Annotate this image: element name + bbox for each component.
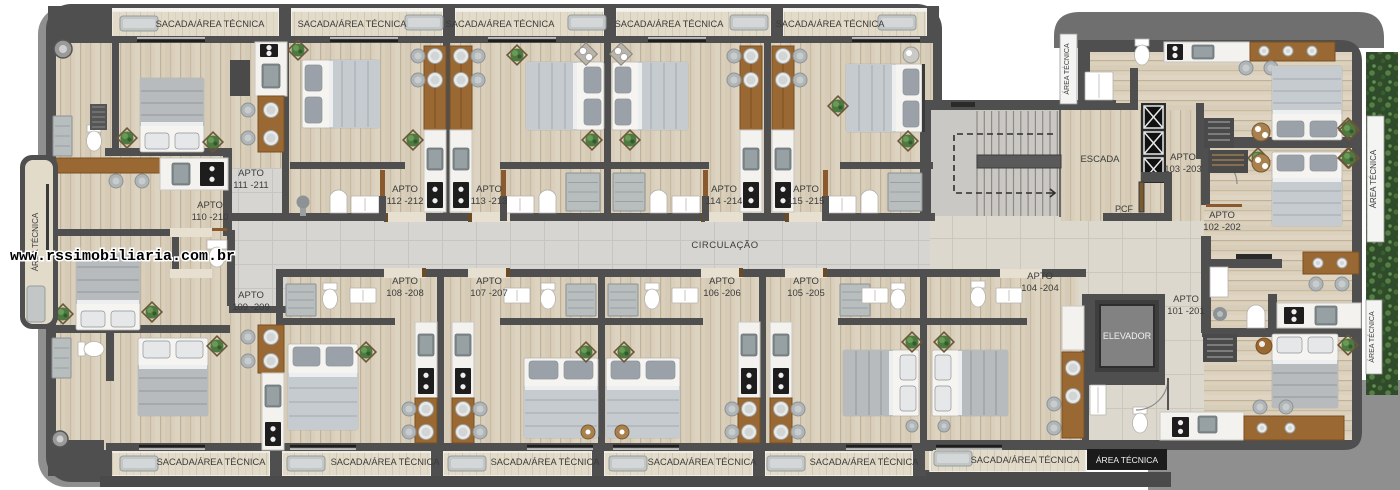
svg-text:SACADA/ÁREA TÉCNICA: SACADA/ÁREA TÉCNICA (971, 455, 1081, 465)
svg-text:ÁREA TÉCNICA: ÁREA TÉCNICA (1062, 43, 1071, 95)
svg-text:105 -205: 105 -205 (787, 288, 825, 299)
svg-text:115 -215: 115 -215 (788, 196, 825, 207)
svg-text:APTO: APTO (476, 184, 502, 195)
svg-text:APTO: APTO (238, 168, 264, 179)
svg-text:www.rssimobiliaria.com.br: www.rssimobiliaria.com.br (10, 248, 235, 265)
svg-text:SACADA/ÁREA TÉCNICA: SACADA/ÁREA TÉCNICA (615, 19, 725, 29)
svg-text:108 -208: 108 -208 (386, 288, 424, 299)
svg-text:ÁREA TÉCNICA: ÁREA TÉCNICA (1367, 311, 1376, 363)
svg-text:SACADA/ÁREA TÉCNICA: SACADA/ÁREA TÉCNICA (331, 457, 441, 467)
svg-text:APTO: APTO (793, 184, 819, 195)
svg-text:APTO: APTO (1170, 152, 1196, 163)
svg-text:109 -209: 109 -209 (232, 302, 270, 313)
svg-text:101 -201: 101 -201 (1167, 306, 1205, 317)
svg-text:112 -212: 112 -212 (387, 196, 424, 207)
svg-text:SACADA/ÁREA TÉCNICA: SACADA/ÁREA TÉCNICA (157, 457, 267, 467)
svg-text:ESCADA: ESCADA (1080, 154, 1120, 165)
svg-text:APTO: APTO (392, 276, 418, 287)
svg-text:114 -214: 114 -214 (706, 196, 743, 207)
svg-text:111 -211: 111 -211 (233, 180, 268, 191)
svg-text:APTO: APTO (793, 276, 819, 287)
svg-text:ÁREA TÉCNICA: ÁREA TÉCNICA (1369, 149, 1378, 208)
svg-text:APTO: APTO (238, 290, 264, 301)
svg-text:SACADA/ÁREA TÉCNICA: SACADA/ÁREA TÉCNICA (491, 457, 601, 467)
svg-text:APTO: APTO (711, 184, 737, 195)
svg-text:APTO: APTO (1209, 210, 1235, 221)
svg-text:SACADA/ÁREA TÉCNICA: SACADA/ÁREA TÉCNICA (776, 19, 886, 29)
svg-text:APTO: APTO (197, 200, 223, 211)
svg-text:110 -210: 110 -210 (192, 212, 229, 223)
svg-text:CIRCULAÇÃO: CIRCULAÇÃO (691, 240, 758, 251)
svg-text:APTO: APTO (709, 276, 735, 287)
svg-text:SACADA/ÁREA TÉCNICA: SACADA/ÁREA TÉCNICA (648, 457, 758, 467)
svg-text:APTO: APTO (476, 276, 502, 287)
svg-text:SACADA/ÁREA TÉCNICA: SACADA/ÁREA TÉCNICA (810, 457, 920, 467)
svg-text:102 -202: 102 -202 (1203, 222, 1241, 233)
svg-text:SACADA/ÁREA TÉCNICA: SACADA/ÁREA TÉCNICA (156, 19, 266, 29)
svg-text:106 -206: 106 -206 (703, 288, 741, 299)
svg-text:APTO: APTO (392, 184, 418, 195)
svg-text:107 -207: 107 -207 (470, 288, 508, 299)
svg-text:ÁREA TÉCNICA: ÁREA TÉCNICA (1096, 455, 1159, 465)
svg-text:113 -213: 113 -213 (471, 196, 508, 207)
svg-text:104 -204: 104 -204 (1021, 283, 1059, 294)
svg-text:ELEVADOR: ELEVADOR (1103, 331, 1152, 341)
svg-text:PCF: PCF (1115, 204, 1134, 214)
svg-text:SACADA/ÁREA TÉCNICA: SACADA/ÁREA TÉCNICA (298, 19, 408, 29)
svg-text:APTO: APTO (1027, 271, 1053, 282)
svg-text:103 -203: 103 -203 (1164, 164, 1202, 175)
svg-text:APTO: APTO (1173, 294, 1199, 305)
svg-text:SACADA/ÁREA TÉCNICA: SACADA/ÁREA TÉCNICA (446, 19, 556, 29)
